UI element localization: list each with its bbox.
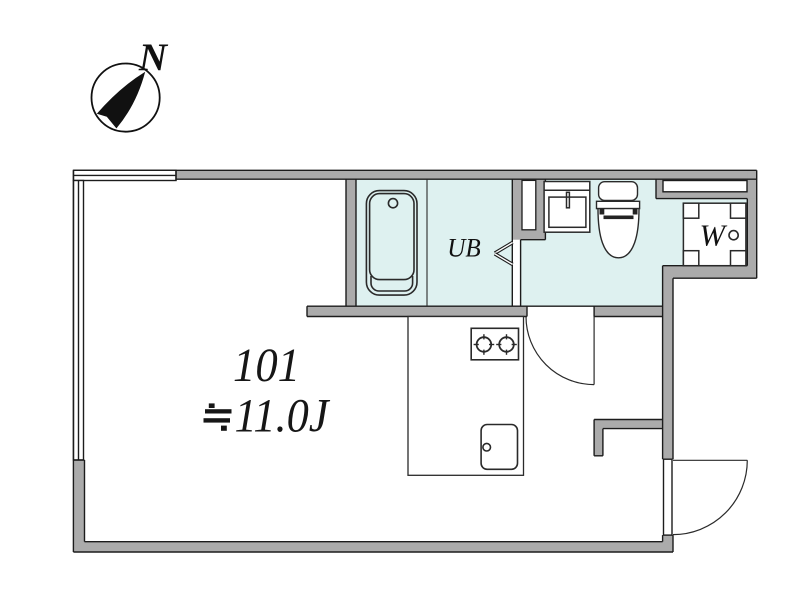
svg-text:UB: UB bbox=[447, 234, 481, 263]
svg-text:N: N bbox=[138, 36, 169, 79]
svg-text:11.0J: 11.0J bbox=[235, 390, 331, 443]
svg-text:101: 101 bbox=[233, 339, 300, 392]
svg-text:W: W bbox=[699, 218, 728, 253]
